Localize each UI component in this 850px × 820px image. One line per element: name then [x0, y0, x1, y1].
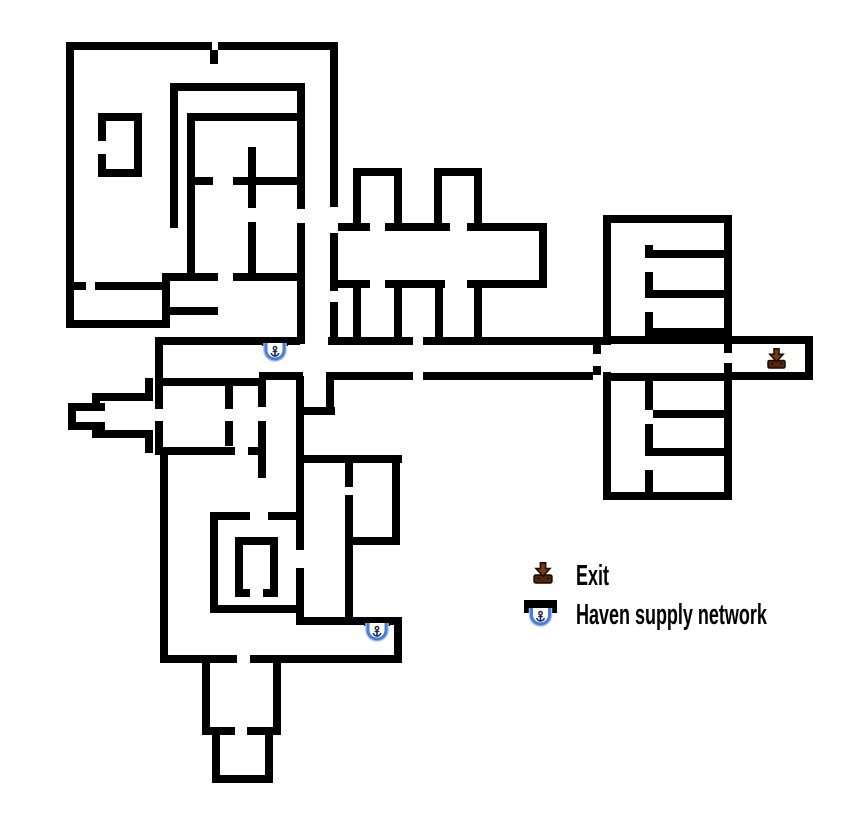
wall-segment: [250, 655, 402, 663]
wall-segment: [474, 168, 482, 228]
wall-segment: [235, 537, 243, 597]
wall-segment: [593, 345, 601, 354]
wall-segment: [225, 386, 233, 409]
supply-network-marker[interactable]: [364, 620, 390, 643]
wall-segment: [338, 223, 370, 231]
wall-segment: [603, 492, 732, 500]
legend-exit-label: Exit: [576, 562, 629, 591]
wall-segment: [474, 288, 482, 338]
exit-marker[interactable]: [767, 348, 786, 369]
wall-segment: [394, 168, 402, 228]
wall-segment: [92, 393, 153, 401]
wall-segment: [163, 273, 218, 281]
wall-segment: [98, 113, 106, 141]
legend-supply-label: Haven supply network: [576, 601, 850, 630]
wall-segment: [611, 336, 724, 344]
wall-segment: [145, 378, 153, 401]
wall-segment: [423, 337, 603, 345]
wall-segment: [303, 455, 402, 463]
wall-segment: [155, 378, 262, 386]
wall-segment: [593, 366, 601, 375]
wall-segment: [435, 288, 443, 338]
wall-segment: [304, 407, 335, 415]
wall-segment: [258, 421, 266, 478]
wall-segment: [210, 512, 250, 520]
wall-segment: [297, 83, 305, 209]
wall-segment: [193, 177, 213, 185]
wall-segment: [603, 215, 611, 345]
wall-segment: [603, 215, 732, 223]
wall-segment: [270, 537, 278, 597]
wall-segment: [235, 589, 250, 597]
wall-segment: [296, 376, 304, 550]
wall-segment: [353, 537, 400, 545]
wall-segment: [724, 363, 732, 500]
wall-segment: [328, 337, 413, 345]
wall-segment: [603, 372, 611, 500]
wall-segment: [134, 113, 142, 177]
wall-segment: [353, 168, 361, 228]
wall-segment: [247, 727, 281, 735]
wall-segment: [653, 250, 732, 258]
wall-segment: [163, 307, 218, 315]
wall-segment: [385, 223, 450, 231]
wall-segment: [155, 447, 235, 455]
wall-segment: [248, 447, 258, 455]
wall-segment: [732, 372, 805, 380]
wall-segment: [248, 222, 256, 274]
wall-segment: [353, 288, 361, 338]
wall-segment: [66, 42, 212, 50]
wall-segment: [467, 280, 547, 288]
wall-segment: [187, 113, 195, 274]
wall-segment: [645, 424, 653, 456]
wall-segment: [68, 403, 76, 430]
wall-segment: [385, 280, 445, 288]
wall-segment: [248, 147, 256, 208]
wall-segment: [162, 273, 170, 328]
exit-icon: [533, 562, 553, 584]
wall-segment: [218, 42, 338, 50]
wall-segment: [330, 233, 338, 291]
wall-segment: [98, 154, 106, 177]
wall-segment: [645, 373, 653, 410]
wall-segment: [66, 42, 74, 328]
wall-segment: [202, 663, 210, 735]
wall-segment: [297, 223, 305, 344]
wall-segment: [732, 336, 813, 344]
wall-segment: [155, 421, 163, 447]
wall-segment: [392, 458, 400, 540]
wall-segment: [611, 373, 724, 381]
wall-segment: [160, 455, 168, 657]
legend-exit-text: Exit: [576, 562, 609, 591]
wall-segment: [95, 282, 163, 290]
wall-segment: [434, 168, 442, 228]
wall-segment: [210, 520, 218, 613]
legend-supply-text: Haven supply network: [576, 601, 767, 630]
wall-segment: [645, 272, 653, 298]
wall-segment: [645, 312, 653, 344]
wall-segment: [145, 430, 153, 453]
wall-segment: [233, 177, 305, 185]
wall-segment: [345, 463, 353, 487]
wall-segment: [92, 430, 153, 438]
wall-segment: [170, 83, 178, 228]
wall-segment: [326, 372, 413, 380]
wall-segment: [225, 421, 233, 446]
wall-segment: [653, 410, 732, 418]
wall-segment: [467, 223, 547, 231]
wall-segment: [210, 50, 218, 64]
wall-segment: [805, 336, 813, 380]
dungeon-map[interactable]: Exit Haven supply network: [0, 0, 850, 820]
wall-segment: [394, 288, 402, 338]
supply-network-marker[interactable]: [262, 340, 288, 363]
wall-segment: [160, 655, 237, 663]
wall-segment: [268, 512, 304, 520]
wall-segment: [233, 273, 297, 281]
wall-segment: [155, 386, 163, 409]
wall-segment: [423, 372, 593, 380]
wall-segment: [539, 223, 547, 288]
wall-segment: [653, 328, 732, 336]
wall-segment: [645, 470, 653, 500]
wall-segment: [66, 320, 167, 328]
wall-segment: [74, 282, 86, 290]
wall-segment: [210, 605, 303, 613]
wall-segment: [330, 42, 338, 207]
wall-segment: [273, 663, 281, 735]
wall-segment: [653, 290, 732, 298]
wall-segment: [187, 113, 305, 121]
wall-segment: [202, 727, 235, 735]
wall-segment: [345, 495, 353, 617]
supply-network-icon: [524, 598, 557, 628]
wall-segment: [338, 280, 370, 288]
wall-segment: [212, 775, 273, 783]
wall-segment: [170, 83, 305, 91]
wall-segment: [263, 589, 278, 597]
wall-segment: [653, 448, 732, 456]
wall-segment: [645, 245, 653, 258]
